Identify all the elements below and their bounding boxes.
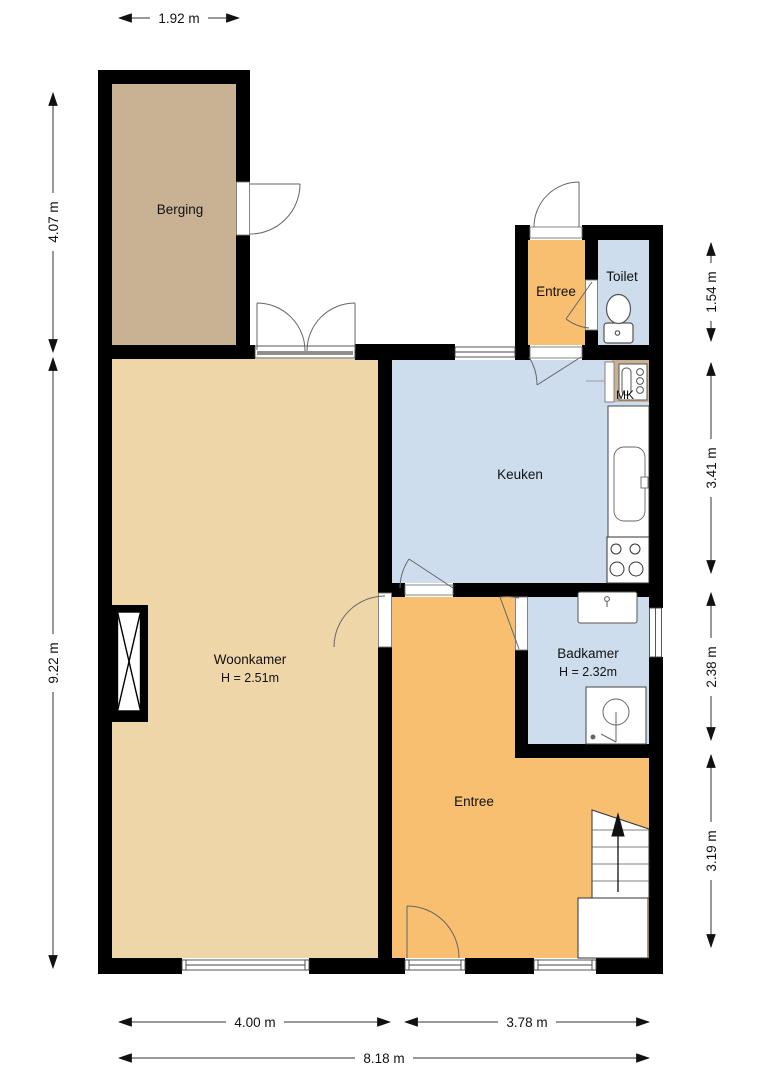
- floor-plan-page: Berging Entree Toilet MK Keuken Woonkame…: [0, 0, 763, 1080]
- door-opening: [530, 227, 582, 238]
- wall: [515, 650, 528, 750]
- bathroom-sink-icon: [578, 592, 637, 623]
- woonkamer-height-label: H = 2.51m: [221, 671, 279, 685]
- wall: [309, 958, 405, 974]
- toilet-label: Toilet: [606, 269, 638, 284]
- shower-icon: [586, 687, 646, 744]
- dimension-left-upper: 4.07 m: [42, 93, 63, 352]
- dimension-right-toilet: 1.54 m: [700, 243, 721, 341]
- mk-partition: [605, 362, 614, 402]
- entree-main-label: Entree: [454, 794, 494, 809]
- dimension-right-bath: 2.38 m: [700, 593, 721, 740]
- wall: [582, 345, 663, 360]
- svg-text:3.19 m: 3.19 m: [704, 830, 719, 871]
- window: [650, 608, 662, 657]
- dimension-right-kitchen: 3.41 m: [700, 363, 721, 573]
- window: [455, 347, 515, 357]
- wall: [515, 345, 530, 360]
- svg-text:4.07 m: 4.07 m: [46, 201, 61, 242]
- french-door-arcs: [257, 303, 355, 351]
- wall: [378, 647, 392, 958]
- door-opening: [405, 585, 453, 595]
- entree-top-label: Entree: [536, 284, 576, 299]
- door-opening: [530, 347, 582, 358]
- floor-plan: Berging Entree Toilet MK Keuken Woonkame…: [0, 0, 763, 1080]
- door-arc: [250, 184, 300, 234]
- wall: [515, 744, 663, 758]
- wall: [515, 225, 528, 360]
- chimney-flue-icon: [118, 612, 141, 711]
- keuken-label: Keuken: [497, 467, 543, 482]
- badkamer-label: Badkamer: [557, 646, 619, 661]
- wall: [649, 657, 663, 972]
- window: [182, 960, 309, 970]
- door-opening: [516, 597, 528, 650]
- door-opening: [379, 593, 392, 647]
- svg-text:4.00 m: 4.00 m: [234, 1015, 275, 1030]
- dimension-bottom-entree: 3.78 m: [405, 1011, 649, 1032]
- badkamer-height-label: H = 2.32m: [559, 665, 617, 679]
- dimension-left-lower: 9.22 m: [42, 358, 63, 968]
- svg-text:1.54 m: 1.54 m: [704, 271, 719, 312]
- woonkamer-label: Woonkamer: [214, 652, 287, 667]
- window: [534, 960, 596, 970]
- svg-text:3.41 m: 3.41 m: [704, 447, 719, 488]
- faucet-icon: [641, 477, 648, 488]
- dimension-bottom-living: 4.00 m: [119, 1011, 390, 1032]
- wall: [98, 70, 250, 84]
- dimension-right-entree: 3.19 m: [700, 755, 721, 947]
- wall: [465, 958, 534, 974]
- wall: [98, 958, 182, 974]
- door-arc: [534, 182, 579, 227]
- wall: [649, 225, 663, 608]
- door-opening: [586, 280, 598, 330]
- svg-text:9.22 m: 9.22 m: [46, 642, 61, 683]
- berging-label: Berging: [157, 202, 204, 217]
- wall: [236, 235, 250, 345]
- wall: [378, 359, 392, 593]
- dimension-bottom-total: 8.18 m: [119, 1047, 649, 1068]
- kitchen-counter: [608, 406, 649, 537]
- wall: [378, 345, 455, 360]
- wall: [236, 84, 250, 182]
- wall: [585, 330, 598, 346]
- front-door-opening: [405, 960, 465, 970]
- wall: [98, 70, 112, 972]
- wall: [582, 225, 663, 240]
- svg-text:2.38 m: 2.38 m: [704, 646, 719, 687]
- stove-icon: [607, 537, 649, 583]
- kitchen-sink-icon: [614, 447, 645, 521]
- mk-label: MK: [616, 388, 634, 402]
- wall: [112, 345, 255, 359]
- svg-text:1.92 m: 1.92 m: [158, 11, 199, 26]
- svg-text:8.18 m: 8.18 m: [363, 1051, 404, 1066]
- dimension-top-berging: 1.92 m: [119, 7, 239, 28]
- svg-text:3.78 m: 3.78 m: [506, 1015, 547, 1030]
- wall: [585, 240, 598, 280]
- door-opening: [237, 182, 250, 235]
